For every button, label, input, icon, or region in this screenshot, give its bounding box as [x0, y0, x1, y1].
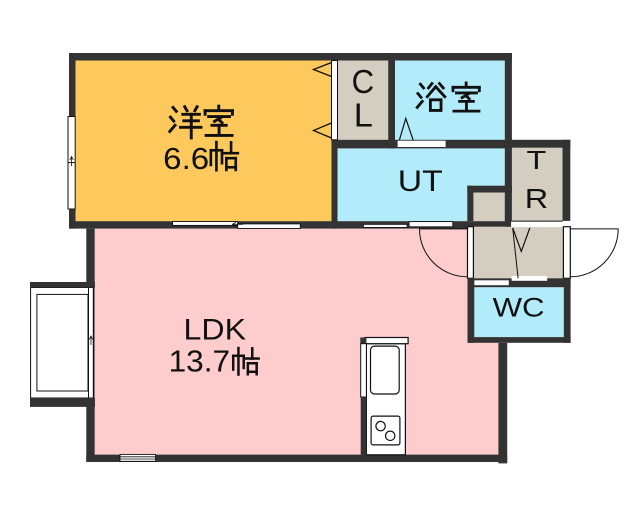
- svg-text:6.6: 6.6: [163, 141, 209, 176]
- svg-text:R: R: [525, 183, 549, 214]
- svg-text:T: T: [527, 145, 547, 175]
- svg-text:13.7: 13.7: [169, 344, 231, 379]
- svg-text:C: C: [352, 63, 375, 100]
- svg-text:UT: UT: [398, 165, 443, 198]
- svg-text:WC: WC: [493, 293, 545, 323]
- svg-text:LDK: LDK: [184, 313, 247, 346]
- svg-text:L: L: [354, 96, 373, 133]
